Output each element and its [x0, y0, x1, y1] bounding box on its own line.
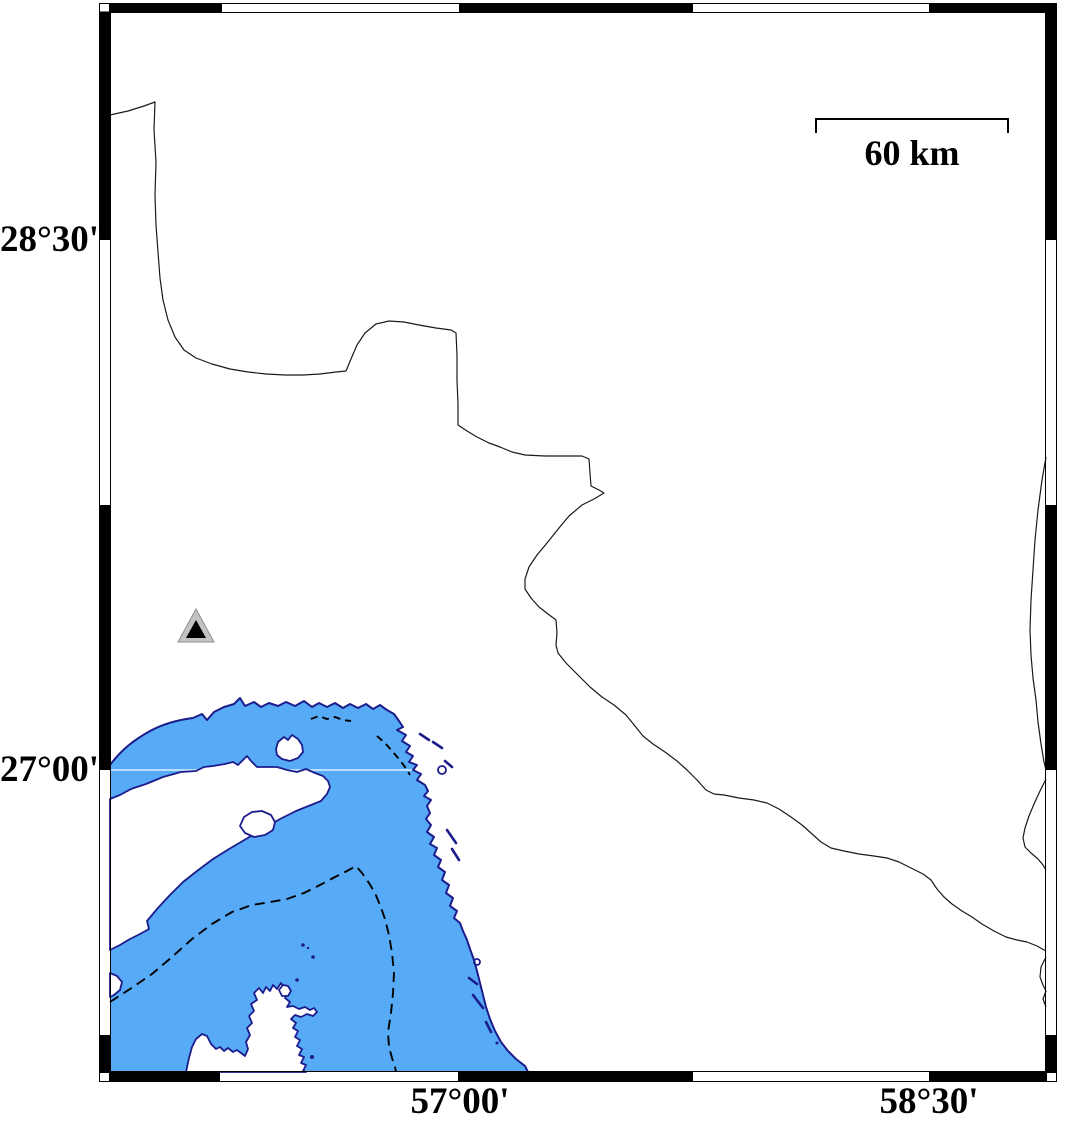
- frame-corner-bottomleft: [100, 1073, 110, 1082]
- map-figure: 28°30' 27°00' 57°00' 58°30' 60 km: [0, 0, 1066, 1121]
- scale-bar-label: 60 km: [832, 134, 992, 172]
- scale-bar: [816, 119, 1008, 133]
- frame-corner-topleft: [100, 4, 110, 13]
- coastal-inlet: [438, 766, 446, 774]
- latitude-label-28-30: 28°30': [0, 217, 90, 263]
- longitude-label-58-30: 58°30': [839, 1083, 1019, 1121]
- east-border-lines: [1023, 457, 1046, 1007]
- fjord-islet: [279, 985, 291, 996]
- latitude-label-27-00: 27°00': [0, 747, 90, 793]
- longitude-label-57-00: 57°00': [370, 1083, 550, 1121]
- triangle-marker: [178, 609, 214, 642]
- frame-corner-bottomright: [1047, 1073, 1057, 1082]
